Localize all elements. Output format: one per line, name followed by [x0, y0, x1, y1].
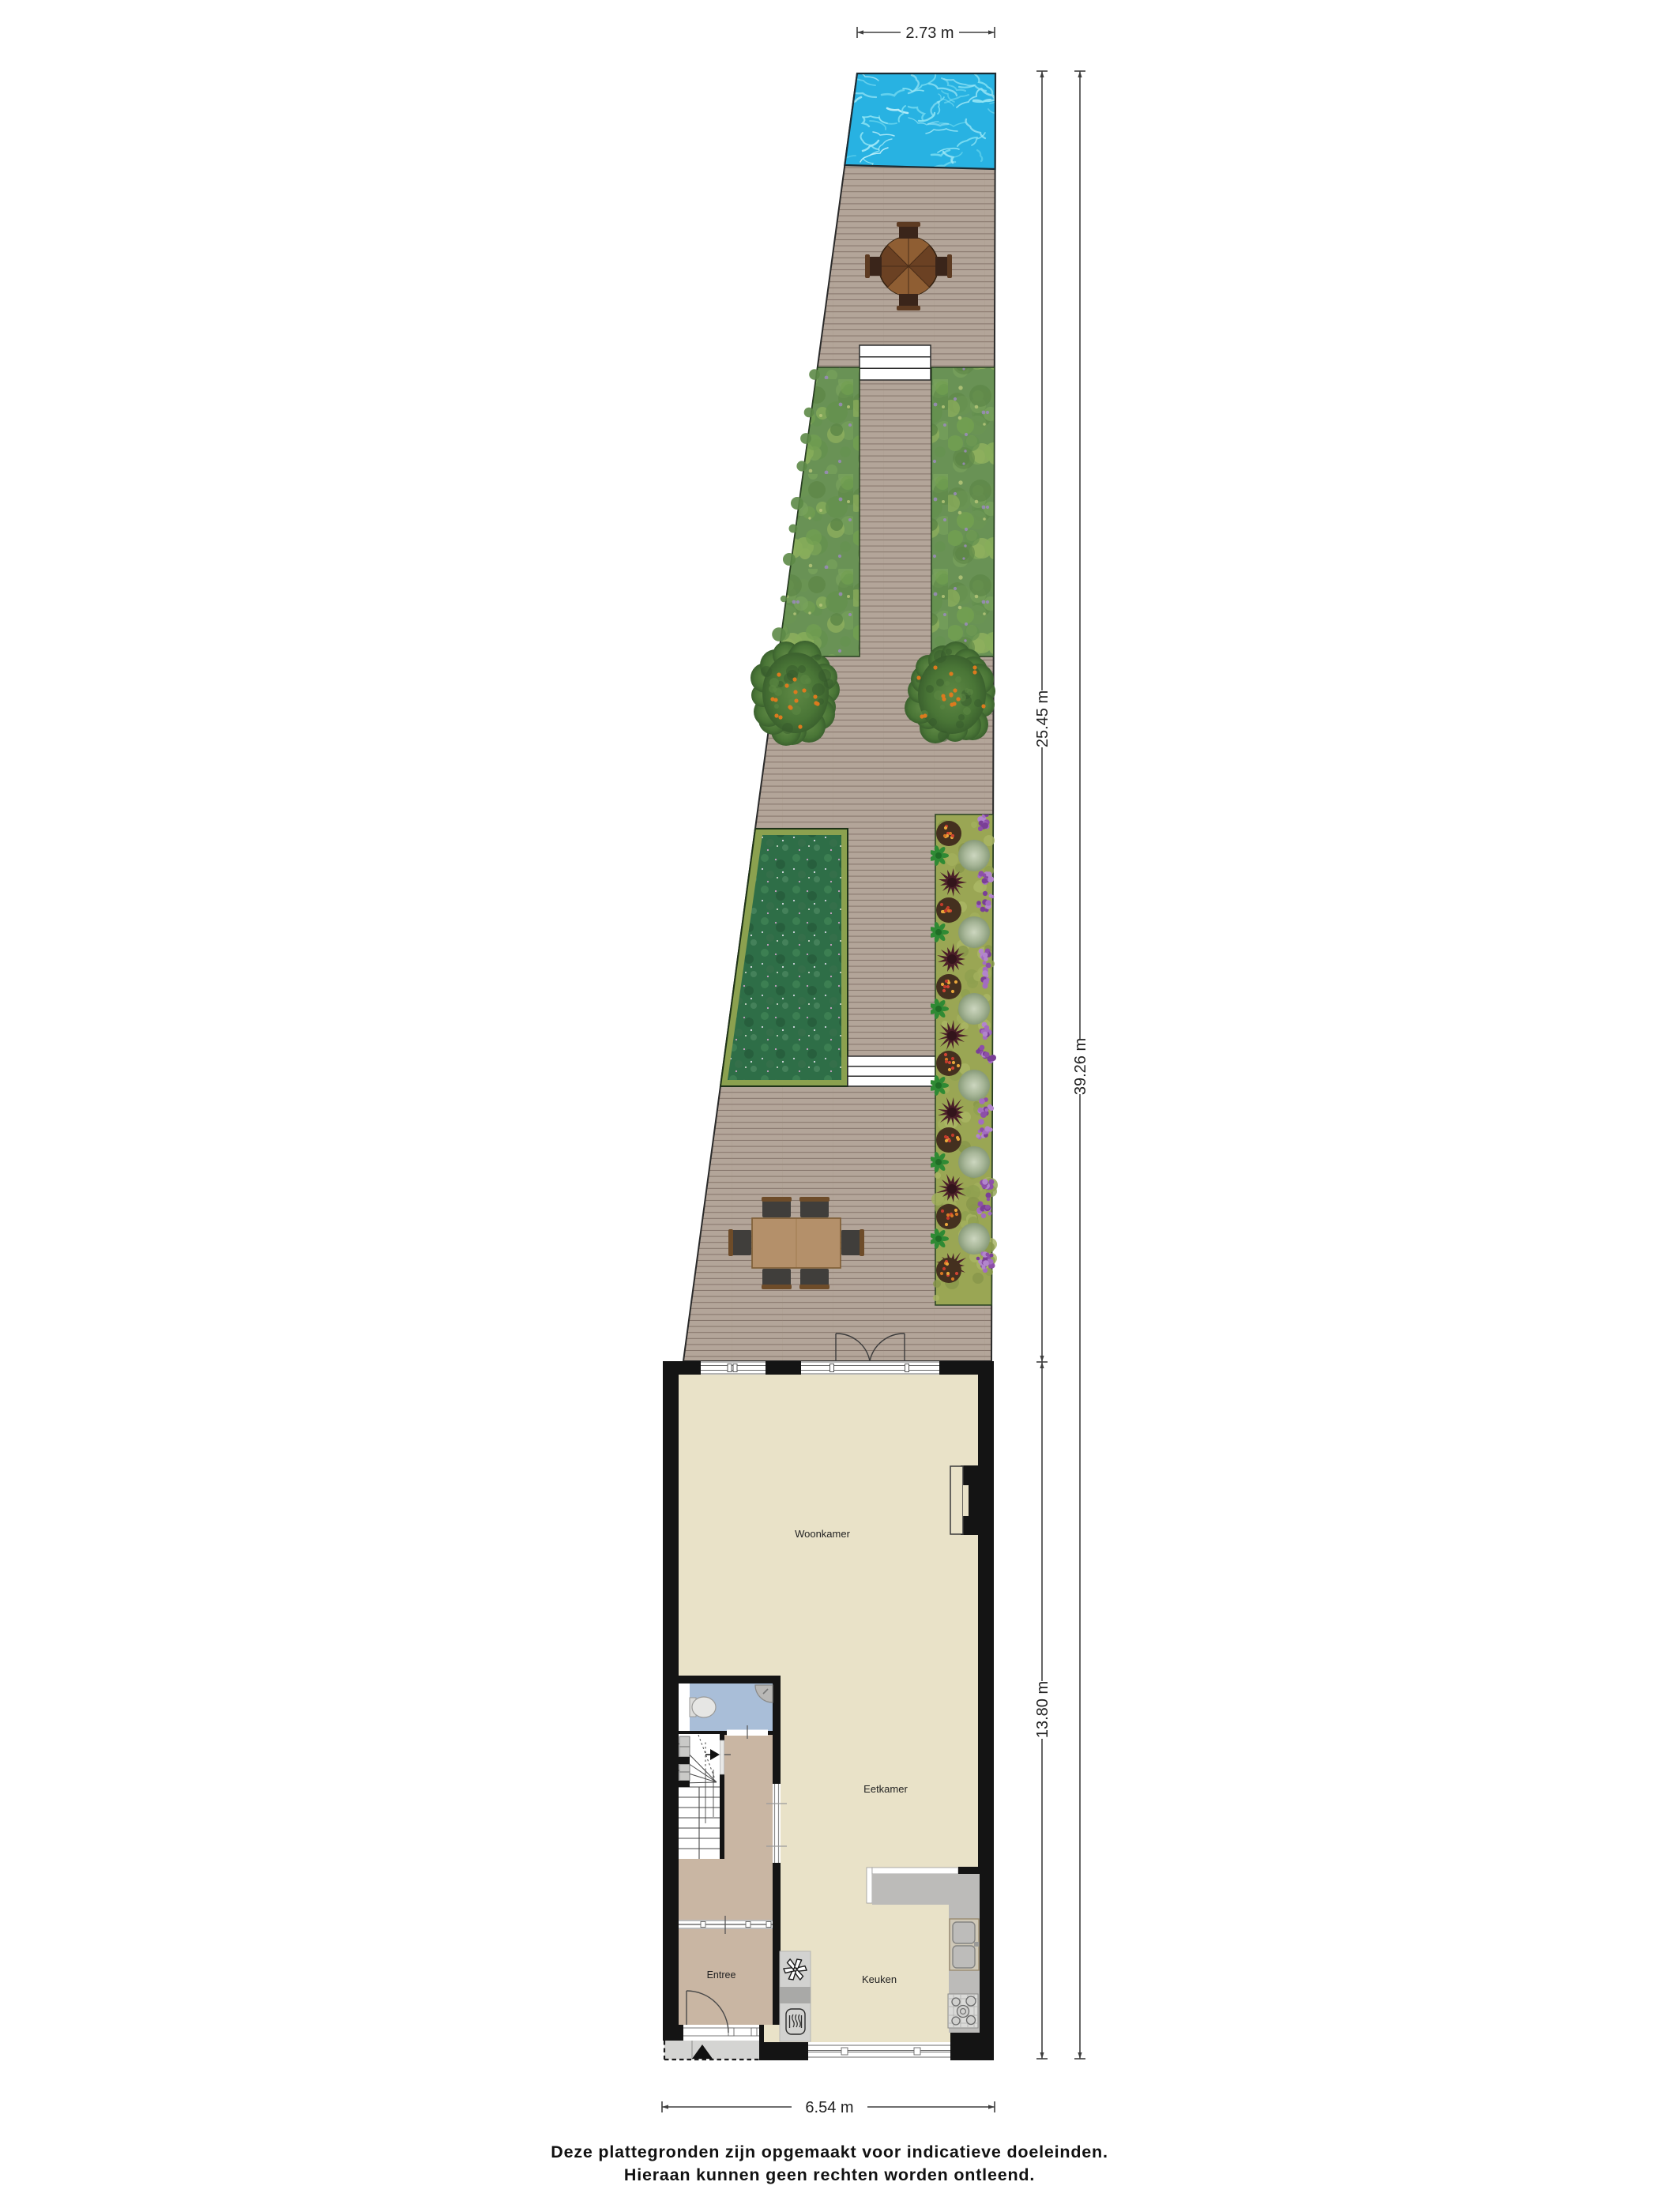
svg-text:39.26 m: 39.26 m [1072, 1038, 1089, 1095]
svg-text:Eetkamer: Eetkamer [863, 1783, 908, 1795]
svg-text:Deze plattegronden zijn opgema: Deze plattegronden zijn opgemaakt voor i… [551, 2142, 1108, 2161]
svg-text:Woonkamer: Woonkamer [795, 1528, 851, 1540]
svg-text:6.54 m: 6.54 m [805, 2099, 853, 2116]
svg-text:25.45 m: 25.45 m [1034, 690, 1051, 747]
svg-text:Entree: Entree [707, 1969, 736, 1981]
svg-text:2.73 m: 2.73 m [905, 24, 954, 42]
svg-text:Hieraan kunnen geen rechten wo: Hieraan kunnen geen rechten worden ontle… [624, 2165, 1035, 2184]
svg-text:Keuken: Keuken [862, 1973, 897, 1985]
svg-text:13.80 m: 13.80 m [1034, 1681, 1051, 1738]
